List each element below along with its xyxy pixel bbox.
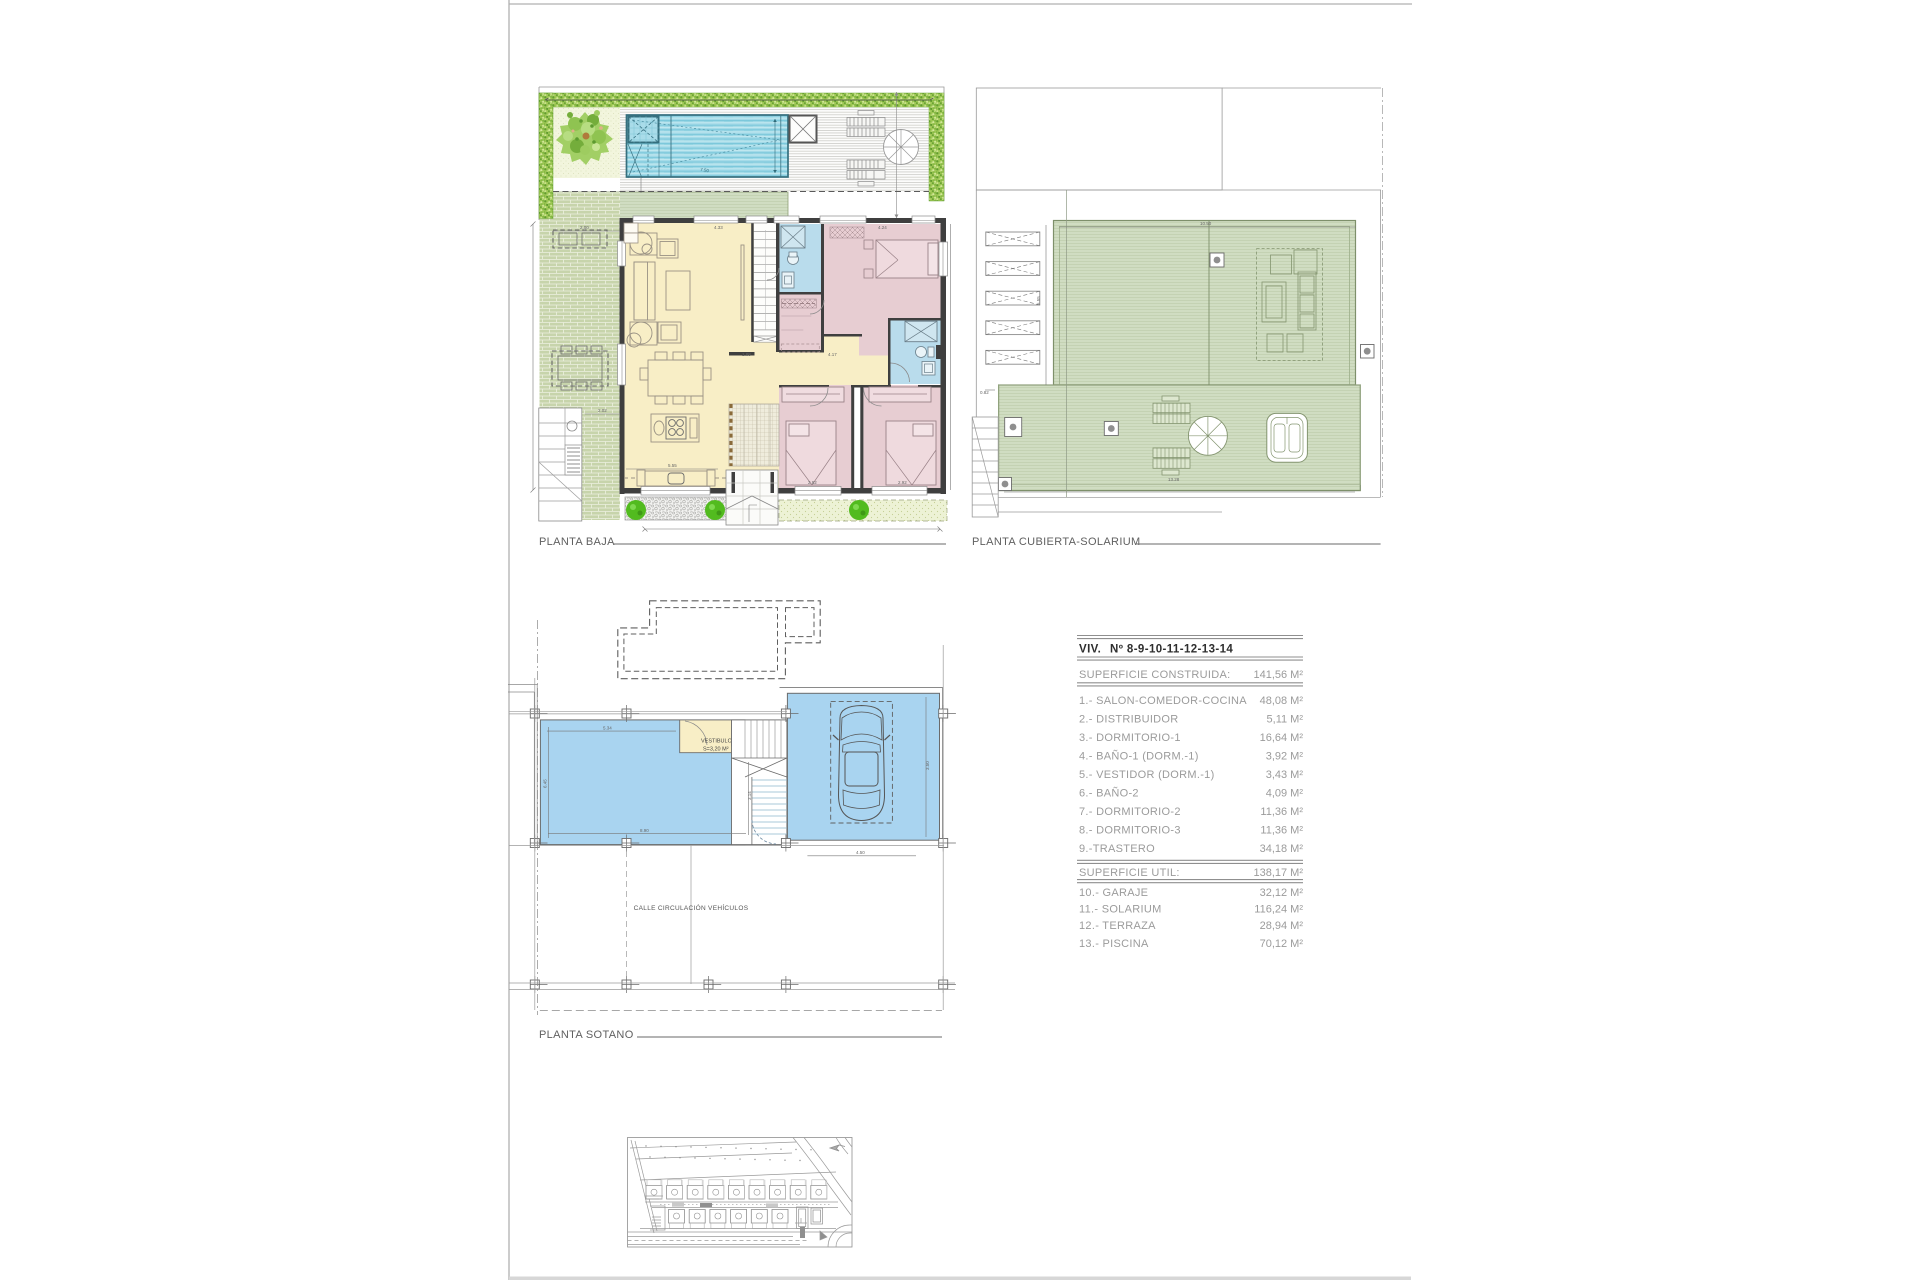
svg-text:2.00: 2.00: [580, 225, 589, 230]
svg-text:5.55: 5.55: [668, 463, 677, 468]
svg-text:5,11 M²: 5,11 M²: [1267, 714, 1304, 726]
svg-text:12.- TERRAZA: 12.- TERRAZA: [1079, 920, 1156, 932]
svg-text:28,94 M²: 28,94 M²: [1260, 920, 1304, 932]
svg-text:3.50: 3.50: [925, 761, 930, 770]
svg-text:S=3,20 M²: S=3,20 M²: [703, 747, 729, 753]
svg-text:5.- VESTIDOR (DORM.-1): 5.- VESTIDOR (DORM.-1): [1079, 769, 1215, 781]
svg-text:3.14: 3.14: [747, 791, 752, 800]
svg-text:2.02: 2.02: [598, 408, 607, 413]
svg-text:2.- DISTRIBUIDOR: 2.- DISTRIBUIDOR: [1079, 714, 1179, 726]
svg-text:PLANTA CUBIERTA-SOLARIUM: PLANTA CUBIERTA-SOLARIUM: [972, 536, 1141, 548]
svg-text:3.- DORMITORIO-1: 3.- DORMITORIO-1: [1079, 732, 1181, 744]
svg-text:6.45: 6.45: [543, 779, 548, 788]
svg-text:10.50: 10.50: [1200, 221, 1212, 226]
svg-text:32,12 M²: 32,12 M²: [1260, 887, 1304, 899]
svg-text:11,36 M²: 11,36 M²: [1260, 825, 1303, 837]
svg-text:4,09 M²: 4,09 M²: [1266, 788, 1304, 800]
svg-text:48,08 M²: 48,08 M²: [1260, 695, 1304, 707]
svg-text:PLANTA BAJA: PLANTA BAJA: [539, 536, 615, 548]
svg-text:SUPERFICIE UTIL:: SUPERFICIE UTIL:: [1079, 867, 1180, 879]
svg-text:2.92: 2.92: [808, 480, 817, 485]
svg-text:116,24 M²: 116,24 M²: [1254, 904, 1303, 916]
svg-text:138,17 M²: 138,17 M²: [1253, 867, 1303, 879]
svg-text:SUPERFICIE CONSTRUIDA:: SUPERFICIE CONSTRUIDA:: [1079, 669, 1230, 681]
svg-text:2.92: 2.92: [898, 480, 907, 485]
svg-text:16,64 M²: 16,64 M²: [1260, 732, 1304, 744]
svg-text:4.33: 4.33: [714, 225, 723, 230]
svg-text:0.82: 0.82: [980, 390, 989, 395]
svg-text:1.- SALON-COMEDOR-COCINA: 1.- SALON-COMEDOR-COCINA: [1079, 695, 1247, 707]
svg-text:4.24: 4.24: [878, 225, 887, 230]
svg-text:VIV.: VIV.: [1079, 644, 1101, 656]
svg-text:34,18 M²: 34,18 M²: [1260, 843, 1304, 855]
svg-text:VESTIBULO: VESTIBULO: [701, 739, 733, 745]
svg-text:4.50: 4.50: [856, 850, 865, 855]
svg-text:Nº 8-9-10-11-12-13-14: Nº 8-9-10-11-12-13-14: [1110, 644, 1233, 656]
svg-text:4.- BAÑO-1 (DORM.-1): 4.- BAÑO-1 (DORM.-1): [1079, 750, 1199, 763]
svg-text:11.- SOLARIUM: 11.- SOLARIUM: [1079, 904, 1162, 916]
svg-text:70,12 M²: 70,12 M²: [1260, 938, 1304, 950]
svg-text:1.88: 1.88: [742, 352, 751, 357]
svg-text:5.34: 5.34: [603, 726, 612, 731]
svg-text:141,56 M²: 141,56 M²: [1253, 669, 1303, 681]
svg-text:13.- PISCINA: 13.- PISCINA: [1079, 938, 1149, 950]
svg-text:13.28: 13.28: [1168, 477, 1180, 482]
svg-text:6.- BAÑO-2: 6.- BAÑO-2: [1079, 787, 1139, 800]
svg-text:3,43 M²: 3,43 M²: [1266, 769, 1304, 781]
svg-text:4.17: 4.17: [828, 352, 837, 357]
svg-text:PLANTA SOTANO: PLANTA SOTANO: [539, 1029, 634, 1041]
svg-text:5.55: 5.55: [1036, 296, 1041, 305]
svg-text:9.-TRASTERO: 9.-TRASTERO: [1079, 843, 1155, 855]
svg-text:11,36 M²: 11,36 M²: [1260, 806, 1303, 818]
svg-text:CALLE CIRCULACIÓN VEHÍCULOS: CALLE CIRCULACIÓN VEHÍCULOS: [634, 903, 749, 912]
svg-text:8.90: 8.90: [640, 828, 649, 833]
svg-text:8.- DORMITORIO-3: 8.- DORMITORIO-3: [1079, 825, 1181, 837]
svg-text:3,92 M²: 3,92 M²: [1266, 751, 1304, 763]
svg-text:10.- GARAJE: 10.- GARAJE: [1079, 887, 1148, 899]
svg-text:7.- DORMITORIO-2: 7.- DORMITORIO-2: [1079, 806, 1181, 818]
